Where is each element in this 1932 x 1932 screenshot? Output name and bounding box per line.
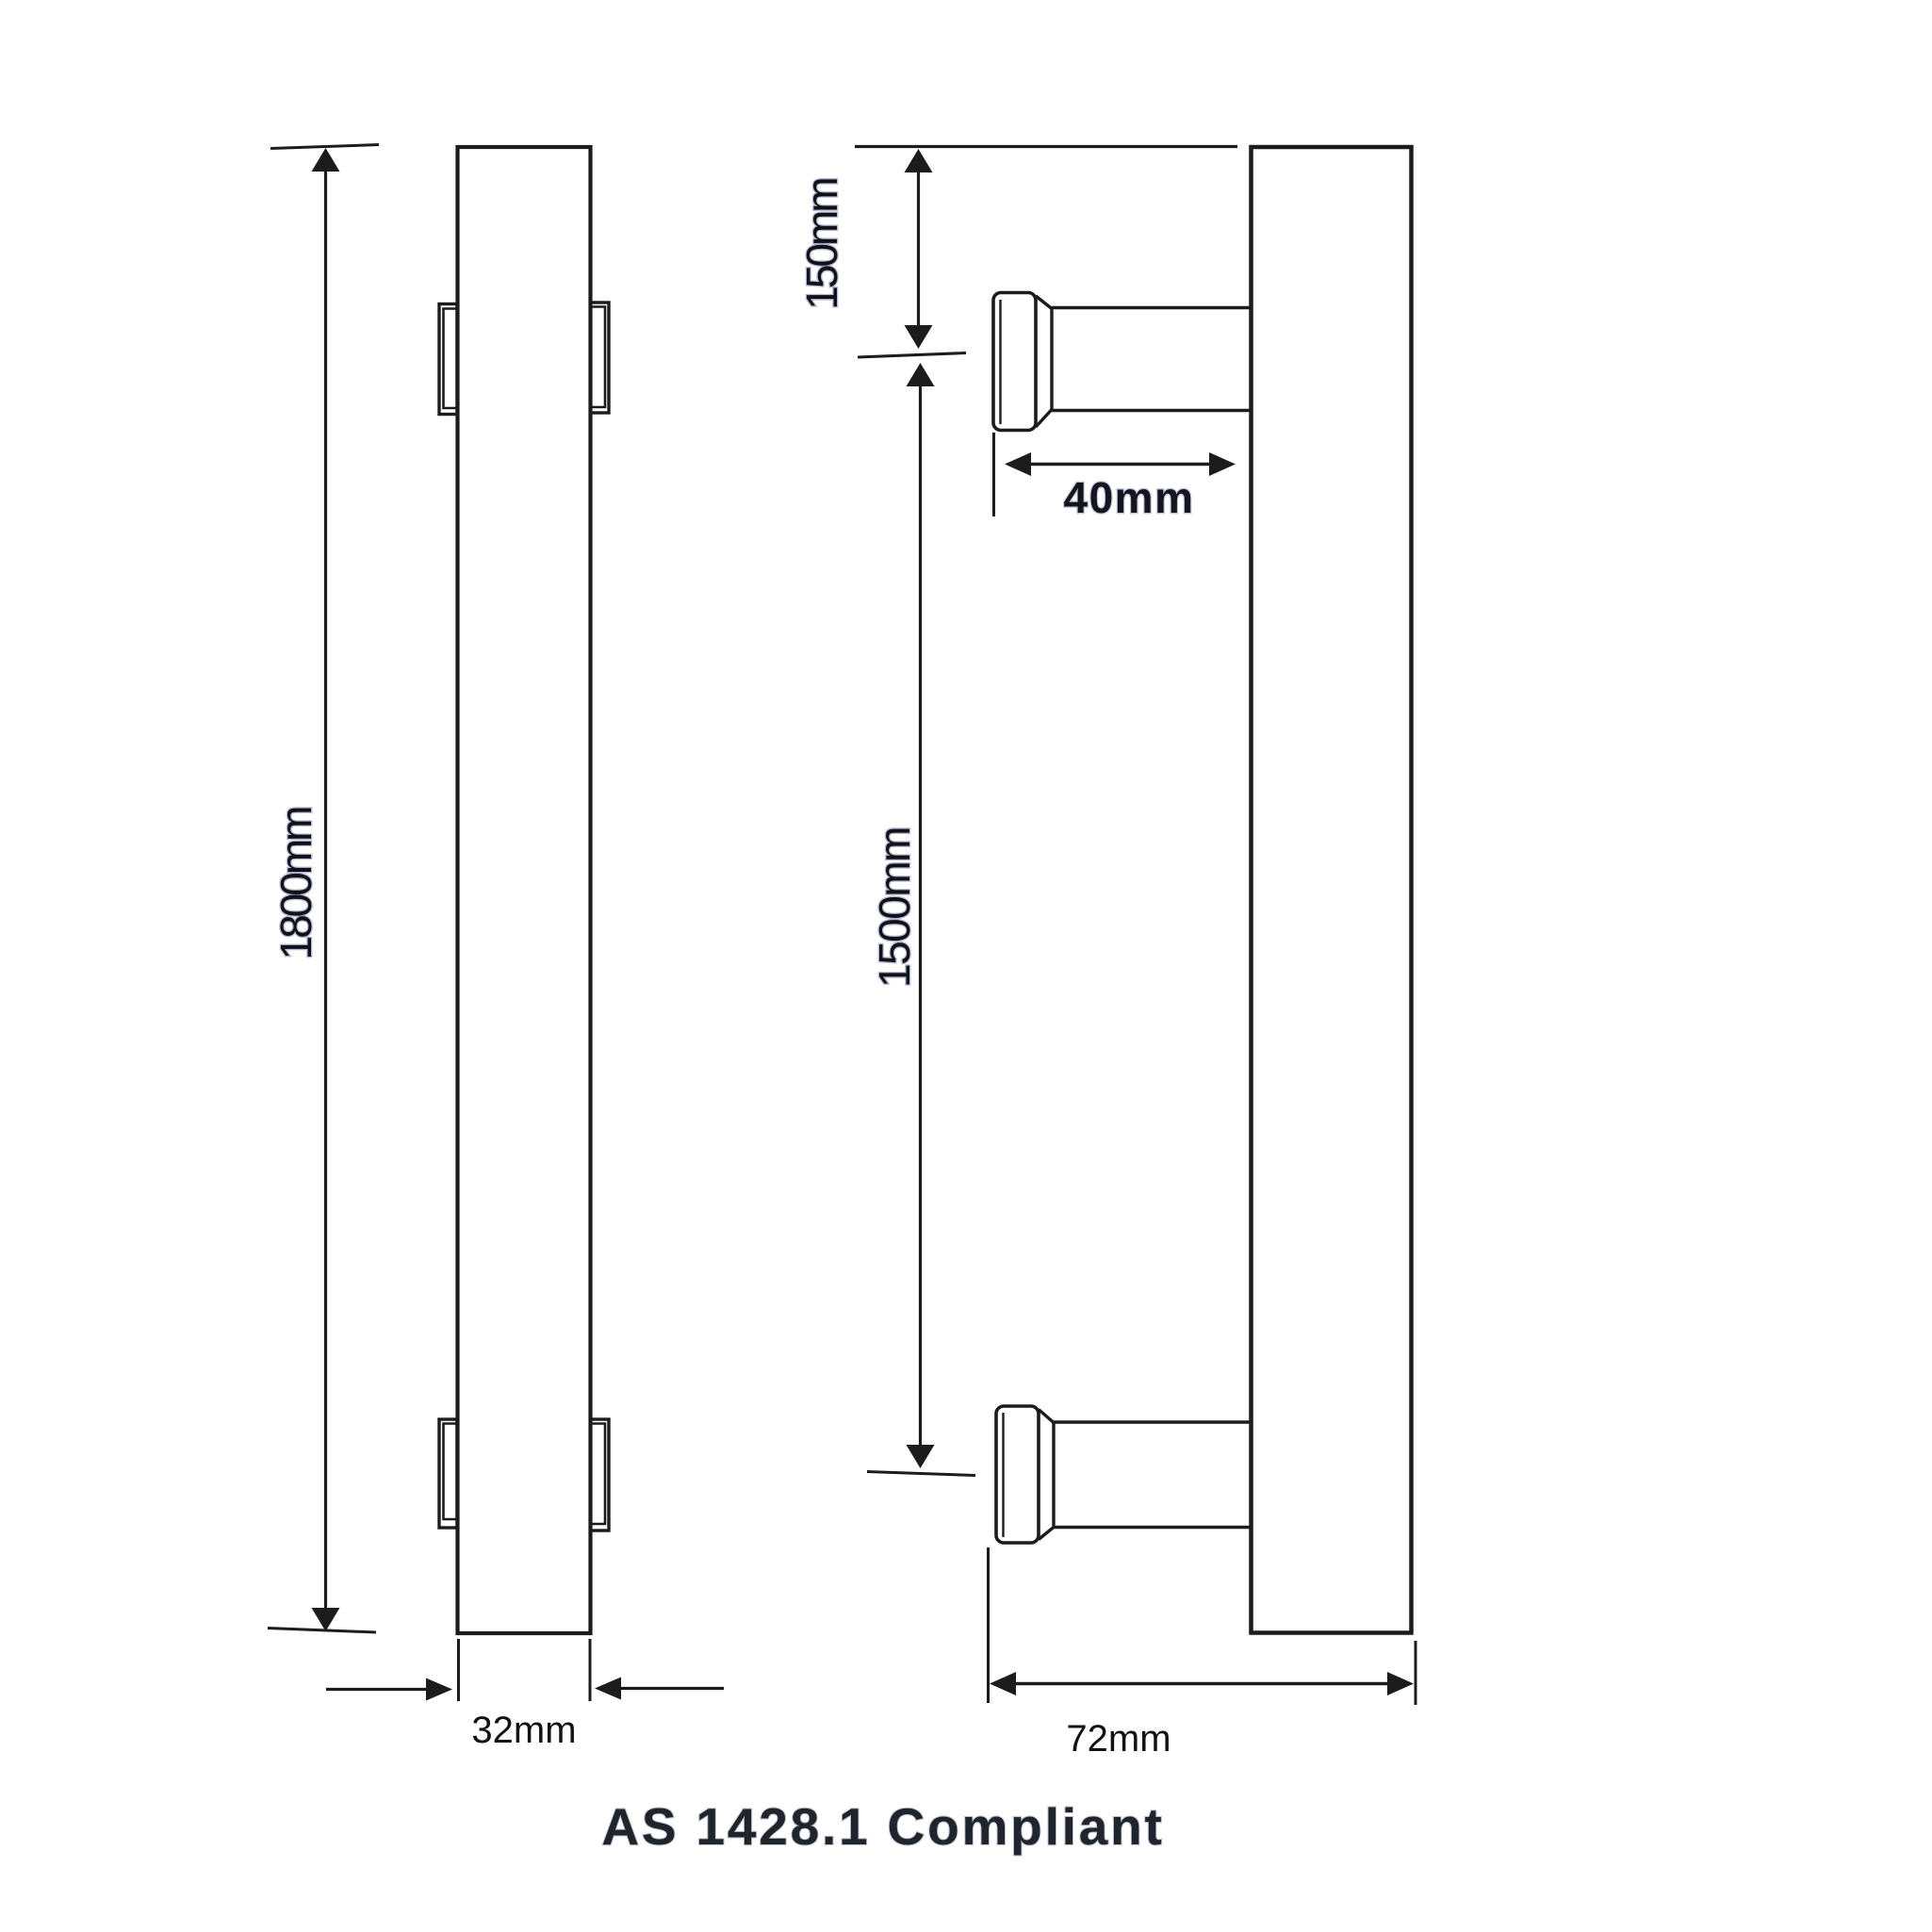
svg-text:40mm: 40mm (1064, 473, 1195, 522)
svg-text:AS 1428.1 Compliant: AS 1428.1 Compliant (601, 1797, 1164, 1856)
svg-text:72mm: 72mm (1066, 1718, 1171, 1760)
svg-text:150mm: 150mm (797, 179, 846, 310)
svg-text:1500mm: 1500mm (870, 827, 919, 988)
svg-text:1800mm: 1800mm (271, 808, 320, 960)
svg-text:32mm: 32mm (471, 1710, 576, 1751)
